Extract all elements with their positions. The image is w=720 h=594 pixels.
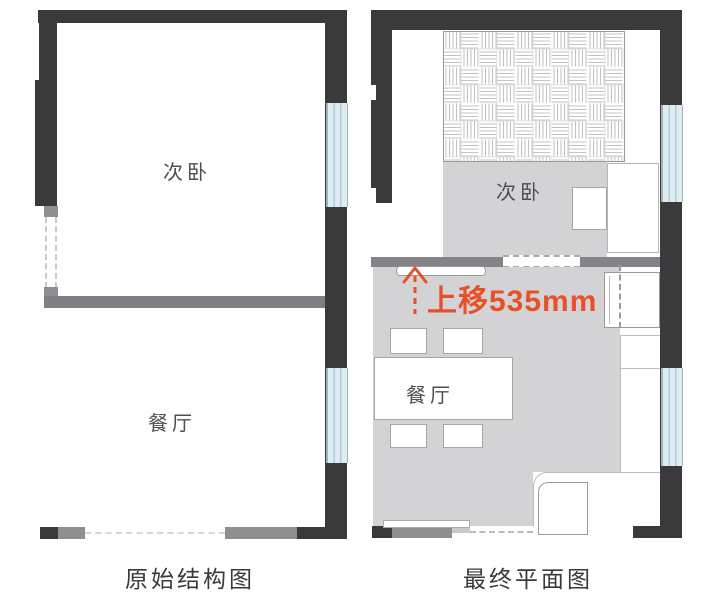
wall-left: [371, 10, 392, 203]
wall-bottom-gray: [225, 527, 297, 539]
shoe-cabinet: [538, 482, 588, 535]
wall-left-notch: [371, 188, 376, 203]
window: [661, 105, 683, 202]
bedside-cabinet: [607, 163, 659, 253]
room-label-dining: 餐厅: [375, 379, 485, 408]
dining-floor: [373, 472, 533, 526]
wall-end-cap: [44, 206, 58, 217]
counter-line: [620, 335, 660, 336]
window: [326, 103, 348, 207]
wall-opening: [85, 532, 225, 534]
wardrobe-swing-dashed: [619, 265, 621, 328]
divider-wall: [44, 296, 325, 308]
dining-chair: [443, 424, 483, 448]
wall-bottom-gray: [58, 527, 85, 539]
nightstand: [572, 187, 607, 230]
entry-threshold: [383, 520, 470, 528]
room-label-bedroom: 次卧: [465, 176, 575, 205]
bed-pattern-icon: [443, 31, 625, 162]
wall-bottom: [633, 526, 682, 538]
room-label-bedroom: 次卧: [132, 156, 242, 185]
wall-left-jog: [35, 80, 39, 206]
dining-chair: [443, 328, 483, 354]
wall-bottom: [40, 527, 58, 539]
plan-caption: 原始结构图: [75, 560, 305, 594]
door-opening: [45, 217, 47, 288]
counter-line: [620, 368, 660, 369]
wall-top: [371, 10, 682, 30]
plan-caption: 最终平面图: [413, 560, 643, 594]
window: [661, 368, 683, 466]
bed: [443, 31, 625, 162]
wardrobe-door-line: [609, 276, 610, 324]
annotation-text: 上移535mm: [427, 276, 597, 320]
wall-bottom: [297, 527, 347, 539]
wall-opening: [470, 531, 533, 533]
door-opening: [55, 217, 57, 288]
left-plan: 次卧 餐厅 原始结构图: [0, 0, 360, 593]
dining-chair: [390, 328, 427, 354]
wall-top: [38, 10, 347, 23]
wall-left: [39, 10, 57, 206]
wardrobe-cabinet: [604, 272, 660, 328]
dining-chair: [390, 424, 427, 448]
wall-left-notch: [371, 85, 376, 100]
floor-edge-line: [620, 335, 621, 472]
window: [326, 368, 348, 463]
right-plan: 上移535mm 次卧 餐厅 最终平面图: [360, 0, 720, 593]
room-label-dining: 餐厅: [117, 407, 227, 436]
